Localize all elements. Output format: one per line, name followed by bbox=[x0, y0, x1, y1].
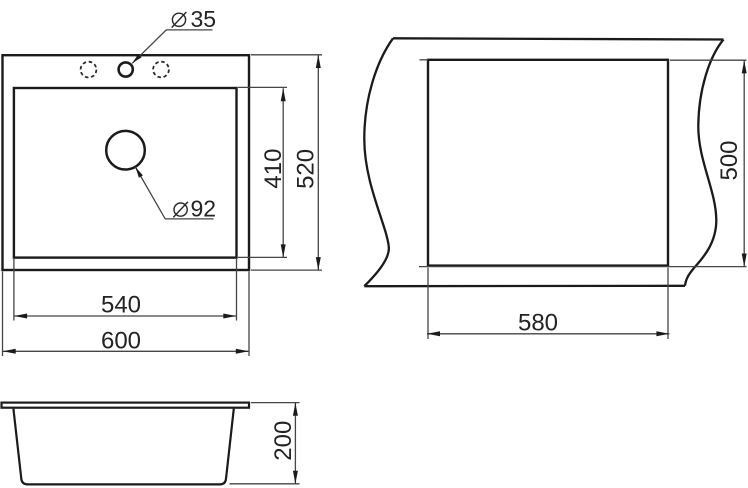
svg-text:540: 540 bbox=[101, 291, 141, 318]
svg-text:500: 500 bbox=[716, 140, 743, 180]
svg-text:600: 600 bbox=[101, 328, 141, 355]
svg-text:35: 35 bbox=[191, 6, 217, 32]
svg-text:520: 520 bbox=[292, 149, 319, 189]
svg-text:200: 200 bbox=[270, 421, 297, 461]
svg-text:410: 410 bbox=[260, 149, 287, 189]
svg-text:92: 92 bbox=[191, 196, 217, 222]
svg-text:580: 580 bbox=[518, 310, 558, 337]
